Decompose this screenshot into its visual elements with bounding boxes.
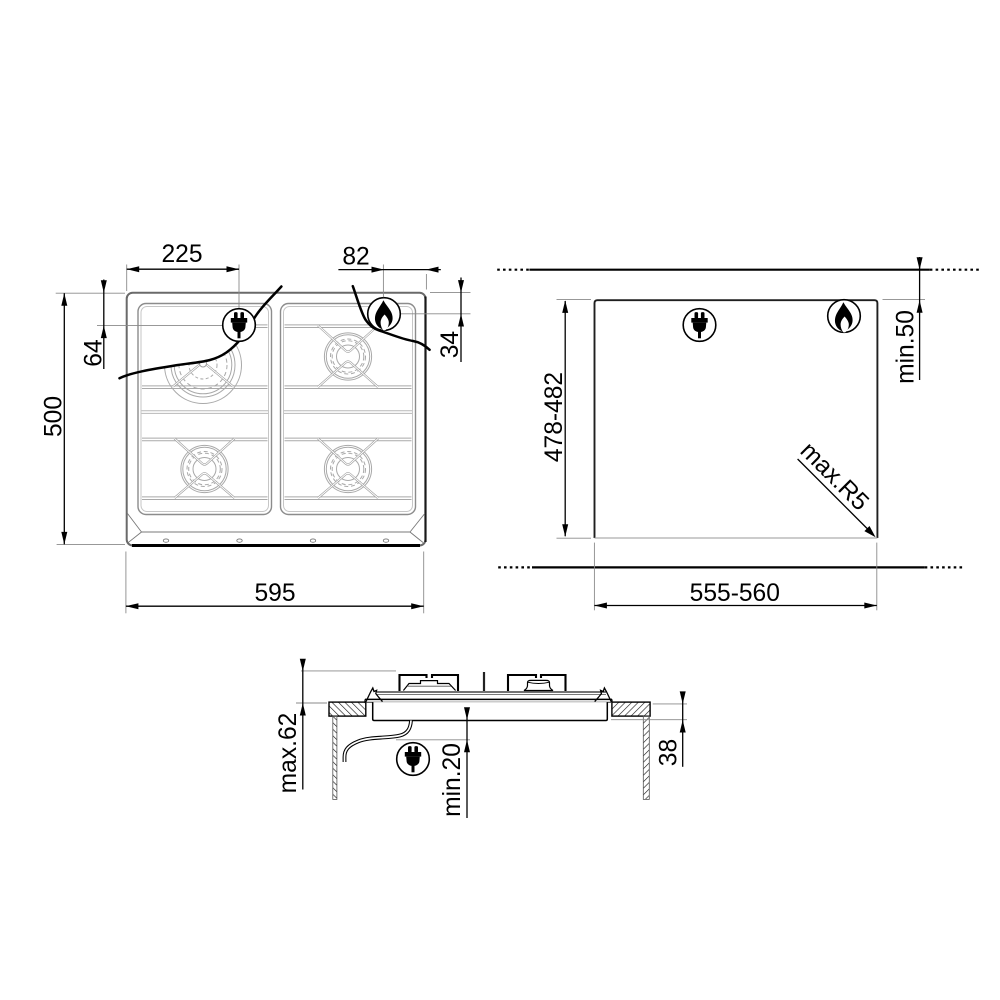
svg-text:34: 34: [437, 331, 464, 358]
svg-text:555-560: 555-560: [690, 580, 780, 607]
svg-text:min.50: min.50: [893, 310, 920, 384]
svg-text:max.62: max.62: [275, 713, 302, 794]
svg-text:500: 500: [41, 396, 68, 437]
svg-text:595: 595: [254, 580, 295, 607]
svg-text:225: 225: [161, 241, 202, 268]
svg-text:min.20: min.20: [439, 743, 466, 817]
svg-text:82: 82: [342, 244, 369, 271]
svg-text:38: 38: [656, 739, 683, 766]
svg-text:478-482: 478-482: [541, 372, 568, 462]
svg-text:64: 64: [81, 339, 108, 366]
